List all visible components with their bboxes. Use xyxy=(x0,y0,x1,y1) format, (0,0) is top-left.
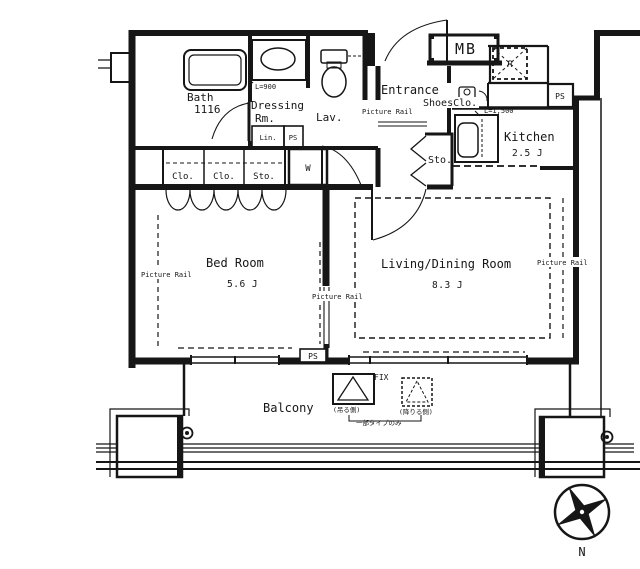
left-pillar xyxy=(110,409,193,477)
meter-box-label: MB xyxy=(455,40,477,58)
label-knockouts xyxy=(139,97,591,301)
dressing-rm-label: Rm. xyxy=(255,112,275,125)
closet1-label: Clo. xyxy=(172,172,194,182)
compass-north-label: N xyxy=(578,545,585,559)
evacuation-hatch-solid xyxy=(333,374,374,404)
kitchen-label: Kitchen xyxy=(504,130,555,144)
kitchen-size-label: 2.5 J xyxy=(512,148,543,159)
ps-lin-label: PS xyxy=(289,134,297,142)
hall-storage-label: Sto. xyxy=(428,155,452,166)
hatch-solid-label: (吊る側) xyxy=(333,406,360,414)
picture-rail-hall-label: Picture Rail xyxy=(362,108,413,116)
linen-label: Lin. xyxy=(260,134,277,142)
living-label: Living/Dining Room xyxy=(381,257,511,271)
entrance-label: Entrance xyxy=(381,83,439,97)
balcony-label: Balcony xyxy=(263,401,314,415)
living-window xyxy=(349,355,527,365)
hatch-dashed-label: (降りる側) xyxy=(399,407,433,416)
closet2-label: Clo. xyxy=(213,172,235,182)
evacuation-hatch-dashed xyxy=(402,378,432,406)
dashed-guides xyxy=(158,198,563,352)
dressing-label: Dressing xyxy=(251,99,304,112)
living-size-label: 8.3 J xyxy=(432,280,463,291)
entrance-step xyxy=(378,122,427,126)
kitchen-counter-dim-label: L=1,500 xyxy=(484,107,514,115)
washer-label: W xyxy=(305,164,311,174)
washbasin-icon xyxy=(249,40,306,86)
floor-plan-page: Bath 1116 Dressing Rm. Lav. Entrance Pic… xyxy=(0,0,640,569)
ps-top-label: PS xyxy=(555,92,565,101)
lav-label: Lav. xyxy=(316,111,343,124)
bathtub-icon xyxy=(184,50,246,90)
exterior-walls xyxy=(98,30,640,368)
living-door-swing xyxy=(372,187,426,240)
compass-rose xyxy=(555,485,609,539)
ps-bedroom-label: PS xyxy=(308,352,318,361)
floor-plan: Bath 1116 Dressing Rm. Lav. Entrance Pic… xyxy=(0,0,640,569)
balcony-structure xyxy=(96,98,640,469)
right-pillar xyxy=(535,409,613,477)
toilet-icon xyxy=(321,50,364,97)
bath-dim-label: 1116 xyxy=(194,103,221,116)
bedroom-label: Bed Room xyxy=(206,256,264,270)
picture-rail-center-label: Picture Rail xyxy=(312,293,363,301)
entrance-door-swing xyxy=(385,20,447,62)
picture-rail-left-label: Picture Rail xyxy=(141,271,192,279)
bedroom-size-label: 5.6 J xyxy=(227,279,258,290)
basin-dim-label: L=900 xyxy=(255,83,276,91)
picture-rail-right-label: Picture Rail xyxy=(537,259,588,267)
closet-storage-label: Sto. xyxy=(253,172,275,182)
fix-window-label: FIX xyxy=(374,373,389,382)
refrigerator-label: R xyxy=(507,60,513,70)
hatch-note-label: 一部タイプのみ xyxy=(356,418,402,427)
shoes-closet-label: ShoesClo. xyxy=(423,98,477,109)
bedroom-window xyxy=(191,355,279,365)
